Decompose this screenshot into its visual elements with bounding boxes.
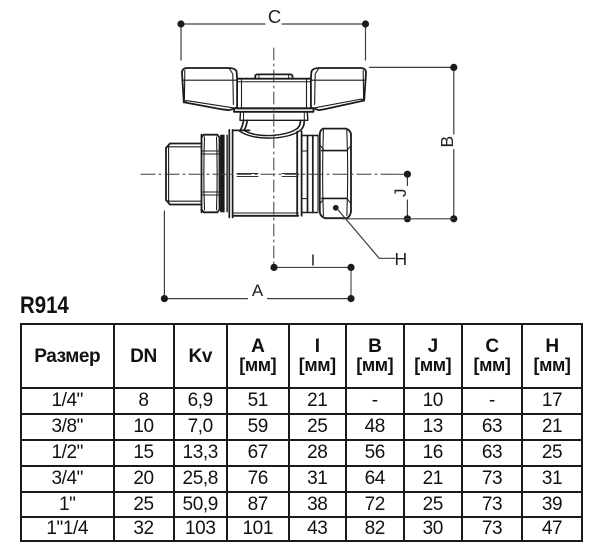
svg-text:B: B — [437, 136, 457, 148]
svg-text:I: I — [311, 253, 315, 270]
svg-text:C: C — [268, 6, 281, 27]
svg-text:A: A — [252, 281, 264, 300]
svg-text:H: H — [394, 249, 407, 269]
svg-text:J: J — [391, 189, 410, 198]
